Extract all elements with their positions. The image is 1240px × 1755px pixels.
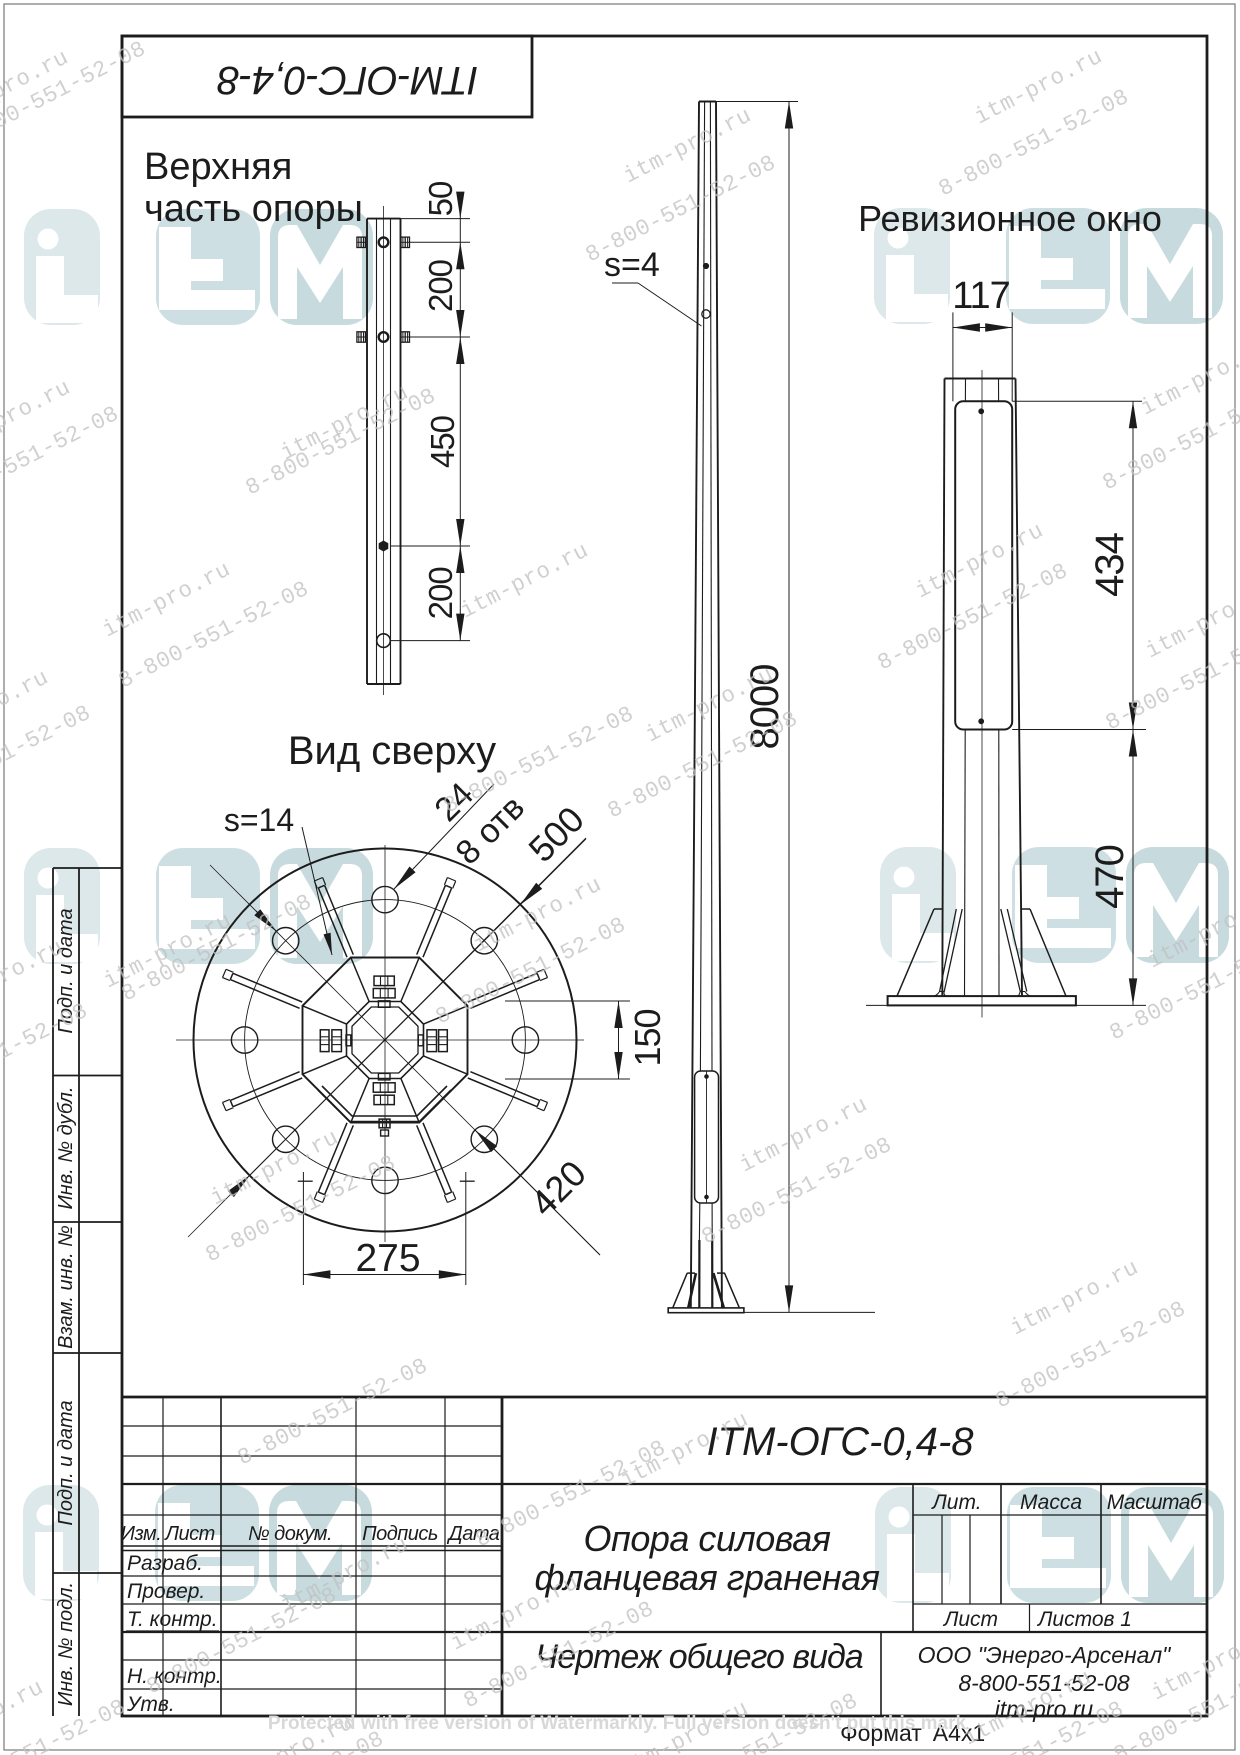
svg-text:Инв. № подл.: Инв. № подл. [55,1582,77,1706]
svg-text:Листов 1: Листов 1 [1036,1608,1132,1631]
svg-text:№ докум.: № докум. [248,1523,332,1545]
svg-text:434: 434 [1088,532,1132,596]
svg-text:Лист: Лист [163,1523,215,1545]
svg-text:Инв. № дубл.: Инв. № дубл. [55,1087,77,1210]
svg-text:ITM-ОГС-0,4-8: ITM-ОГС-0,4-8 [216,58,478,102]
svg-text:Взам. инв. №: Взам. инв. № [55,1225,77,1349]
svg-text:150: 150 [627,1009,668,1066]
svg-text:фланцевая граненая: фланцевая граненая [535,1557,880,1598]
svg-text:200: 200 [422,259,459,312]
svg-text:117: 117 [952,275,1010,317]
svg-text:Ревизионное окно: Ревизионное окно [858,198,1162,239]
svg-text:Утв.: Утв. [126,1693,175,1716]
svg-text:Т. контр.: Т. контр. [127,1608,218,1631]
svg-text:Разраб.: Разраб. [127,1552,203,1575]
svg-text:275: 275 [355,1237,420,1280]
svg-text:Провер.: Провер. [127,1580,205,1603]
svg-text:Подп. и дата: Подп. и дата [55,1400,77,1525]
svg-text:450: 450 [424,415,461,468]
svg-text:Масштаб: Масштаб [1107,1491,1203,1514]
svg-text:200: 200 [422,567,459,620]
svg-text:s=14: s=14 [224,802,294,838]
svg-text:Лист: Лист [942,1608,998,1631]
svg-text:Верхняя: Верхняя [144,146,292,188]
svg-text:470: 470 [1088,845,1132,909]
svg-text:Изм.: Изм. [121,1523,162,1545]
svg-text:Опора силовая: Опора силовая [584,1518,831,1559]
svg-text:Лит.: Лит. [930,1491,981,1514]
svg-text:ООО "Энерго-Арсенал": ООО "Энерго-Арсенал" [918,1642,1173,1668]
svg-text:Вид сверху: Вид сверху [288,729,496,773]
svg-text:Масса: Масса [1020,1491,1082,1514]
svg-text:50: 50 [422,181,459,216]
svg-text:часть опоры: часть опоры [144,188,363,230]
svg-text:Protected with free version of: Protected with free version of Watermark… [268,1713,967,1734]
